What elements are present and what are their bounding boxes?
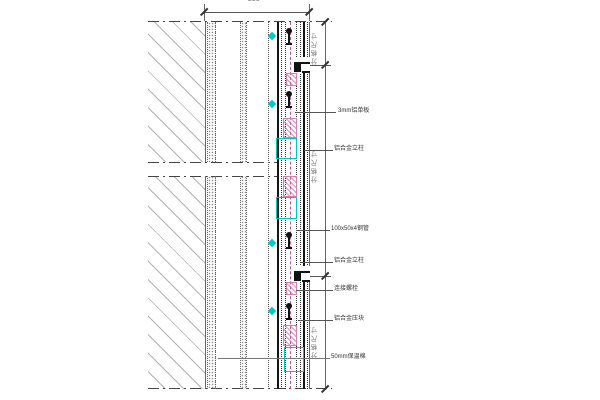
joint2-connector-block: [294, 273, 301, 281]
grid-dim-text-1: 分格尺寸: [311, 27, 321, 65]
gasket-hatch-b: [283, 176, 297, 197]
panel-outer-face-line: [309, 22, 310, 389]
callout-pressure-block: 铝合金压块: [334, 316, 364, 323]
panel-back-line: [268, 22, 270, 389]
callout-bolt: 连接螺栓: [334, 286, 358, 293]
sleeve-box-a: [276, 138, 297, 159]
bolt-icon-2: [286, 91, 293, 109]
wall-hatch-lower: [148, 176, 205, 389]
gasket-hatch-joint2: [286, 282, 297, 295]
mid-break-line-upper: [148, 162, 278, 163]
leader-insulation: [218, 358, 330, 359]
callout-mullion-1: 铝合金立柱: [334, 146, 364, 153]
wall-face-line-lower: [205, 176, 206, 389]
bolt-icon-4: [286, 303, 293, 321]
wall-hatch-upper: [148, 22, 205, 162]
joint1-extension-line: [310, 65, 331, 66]
insulation-layer-lower: [207, 176, 216, 389]
gasket-hatch-a: [283, 118, 297, 138]
gasket-hatch-joint1: [286, 73, 297, 86]
leader-aluminum-panel: [295, 112, 336, 113]
panel-face-line-seg2: [303, 72, 305, 267]
sleeve-box-c: [284, 347, 304, 372]
right-dimension-line: [325, 22, 326, 389]
leader-pressure-block: [298, 320, 333, 321]
joint1-bottom-edge: [302, 71, 310, 73]
joint2-extension-line: [310, 276, 331, 277]
leader-mullion-1: [304, 150, 333, 151]
bolt-icon-3: [286, 232, 293, 250]
callout-aluminum-panel: 3mm铝单板: [338, 108, 369, 115]
cad-section-drawing: 250 分格尺寸 分格尺寸 分格尺寸 3mm铝单板 铝合金立柱 100x50x4…: [0, 0, 600, 400]
callout-insulation: 50mm保温棉: [331, 354, 366, 361]
panel-face-line-seg3: [303, 281, 305, 389]
insulation-layer-upper: [207, 22, 216, 162]
leader-mullion-2: [301, 262, 333, 263]
leader-steel-tube: [296, 230, 330, 231]
sleeve-box-b: [276, 197, 297, 219]
membrane-layer-upper: [240, 22, 247, 162]
bolt-icon-1: [286, 28, 293, 46]
callout-mullion-2: 铝合金立柱: [334, 258, 364, 265]
joint1-connector-block: [294, 64, 301, 72]
callout-steel-tube: 100x50x4钢管: [331, 226, 369, 233]
joint2-bottom-edge: [302, 280, 310, 282]
panel-face-line-seg1: [303, 22, 305, 58]
mullion-web-line-4: [300, 22, 302, 389]
wall-face-line-upper: [205, 22, 206, 162]
leader-bolt: [296, 290, 333, 291]
top-dimension-text: 250: [248, 0, 260, 3]
top-dimension-line: [204, 12, 310, 13]
grid-dim-text-3: 分格尺寸: [311, 321, 321, 359]
gasket-hatch-c: [283, 325, 297, 346]
